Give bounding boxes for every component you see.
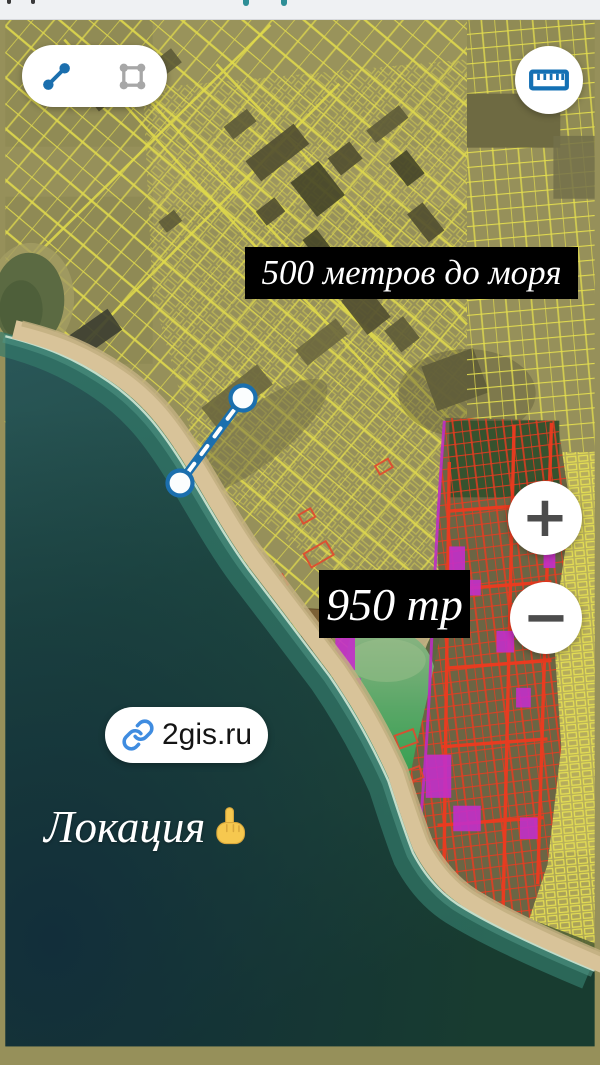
measure-toolbar xyxy=(22,45,167,107)
ruler-button[interactable] xyxy=(515,46,583,114)
link-icon xyxy=(121,718,155,752)
cropped-text-artifact xyxy=(281,0,287,6)
location-caption-text: Локация xyxy=(44,801,205,853)
measure-area-icon xyxy=(114,58,151,95)
map-app-screen: 500 метров до моря 950 тр + − 2gis.ru Ло… xyxy=(0,0,600,1065)
zoom-in-button[interactable]: + xyxy=(508,481,582,555)
measurement-endpoint-handle[interactable] xyxy=(231,386,256,411)
price-label: 950 тр xyxy=(319,570,470,638)
measure-distance-icon xyxy=(38,58,75,95)
zoom-out-button[interactable]: − xyxy=(510,582,582,654)
2gis-link-badge[interactable]: 2gis.ru xyxy=(105,707,268,763)
status-bar xyxy=(0,0,600,20)
location-caption: Локация xyxy=(44,801,248,853)
cropped-text-artifact xyxy=(243,0,249,6)
2gis-link-label: 2gis.ru xyxy=(162,718,252,752)
measurement-endpoint-handle[interactable] xyxy=(168,471,193,496)
cropped-text-artifact xyxy=(31,0,35,4)
measure-area-button[interactable] xyxy=(114,58,151,95)
pointing-up-emoji xyxy=(210,806,248,848)
ruler-icon xyxy=(528,64,570,96)
distance-label: 500 метров до моря xyxy=(245,247,578,299)
measure-distance-button[interactable] xyxy=(38,58,75,95)
cropped-text-artifact xyxy=(7,0,11,4)
